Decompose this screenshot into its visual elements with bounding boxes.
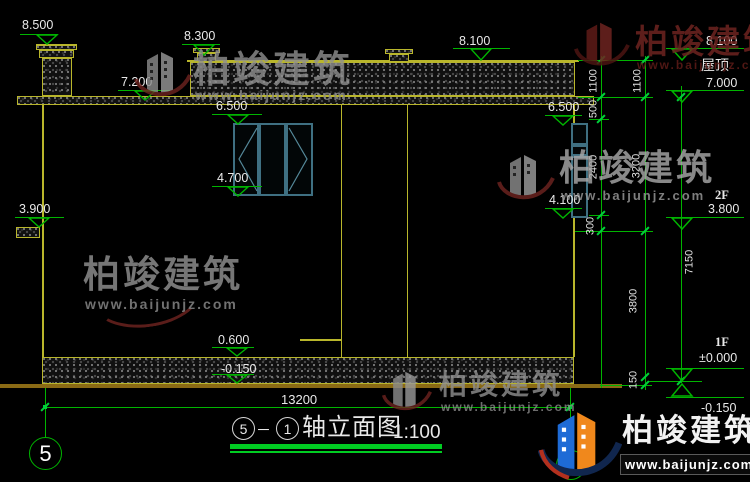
brand-url-bar: www.baijunjz.com <box>620 454 750 475</box>
axis-bubble-5: 5 <box>29 437 62 470</box>
level-line-neg150 <box>666 397 744 398</box>
level-tri-7000 <box>671 90 693 103</box>
dim-13200-line <box>45 407 570 408</box>
watermark-brand-url: www.baijunjz.com <box>85 297 238 311</box>
dim-chain-b-line <box>645 56 646 390</box>
watermark-brand-url: www.baijunjz.com <box>637 59 750 71</box>
dim-chain-overall-line <box>681 86 682 383</box>
title-axis-from: 5 <box>240 421 248 437</box>
level-right-zero: ±0.000 <box>699 352 737 365</box>
axis-bubble-right <box>556 450 586 480</box>
level-0600: 0.600 <box>218 334 249 347</box>
title-axis-to: 1 <box>284 421 292 437</box>
facade-joint-line-2 <box>407 104 408 357</box>
level-tri-4100 <box>552 208 574 219</box>
level-right-neg150: -0.150 <box>701 402 736 415</box>
level-tri-8100-mid <box>470 48 492 61</box>
left-wall-line <box>42 104 44 357</box>
level-6500-right: 6.500 <box>548 101 579 114</box>
left-canopy-slab <box>16 227 40 238</box>
level-right-7000: 7.000 <box>706 77 737 90</box>
level-8500: 8.500 <box>22 19 53 32</box>
level-tri-0600 <box>226 347 248 357</box>
level-tri-8500 <box>36 34 58 45</box>
level-tri-7200 <box>134 90 156 101</box>
roof-slab-band <box>17 96 594 105</box>
level-tri-neg150 <box>671 383 693 397</box>
window-right-mullion-1 <box>573 143 586 147</box>
level-tri-8100 <box>671 48 693 61</box>
chimney-body <box>42 58 72 96</box>
dim-a-1100: 1100 <box>589 69 600 93</box>
brand-logo-url: www.baijunjz.com <box>625 458 750 471</box>
dim-b-1100: 1100 <box>633 69 644 93</box>
dim-a-300: 300 <box>586 217 597 235</box>
level-tri-6500-mid <box>227 114 249 125</box>
brand-logo-text: 柏竣建筑 <box>622 416 750 447</box>
drawing-title: 轴立面图 <box>302 416 402 440</box>
title-axis-from-circle: 5 <box>232 417 255 440</box>
floor-label-2f: 2F <box>715 189 729 202</box>
title-underline-thick <box>230 444 442 449</box>
chimney-cap-band <box>39 50 74 58</box>
upper-roof-band <box>190 62 575 96</box>
level-tri-neg150-mid <box>226 374 248 384</box>
axis-5-grid-line <box>45 388 46 437</box>
ledge-line <box>300 339 341 341</box>
dim-b-3800: 3800 <box>629 289 640 313</box>
level-7200: 7.200 <box>121 76 152 89</box>
level-tri-zero <box>671 368 693 382</box>
facade-joint-line-1 <box>341 104 342 357</box>
window-right-mullion-2 <box>573 154 586 158</box>
level-3900: 3.900 <box>19 203 50 216</box>
vent2-body <box>389 54 409 62</box>
watermark-right: 柏竣建筑 www.baijunjz.com <box>496 147 556 210</box>
level-right-3800: 3.800 <box>708 203 739 216</box>
brand-swoosh <box>87 256 206 335</box>
dim-b-3200: 3200 <box>632 154 643 178</box>
brand-building-icon <box>496 147 556 205</box>
level-8300: 8.300 <box>184 30 215 43</box>
dim-node-dot <box>43 405 47 409</box>
dim-b-150: 150 <box>629 371 640 389</box>
level-tri-6500-right <box>552 115 574 126</box>
floor-label-1f: 1F <box>715 336 729 349</box>
dim-13200: 13200 <box>281 393 317 406</box>
level-tri-4700 <box>227 186 249 197</box>
title-underline-thin <box>230 451 442 453</box>
axis-1-grid-line <box>570 388 571 451</box>
level-8100-mid: 8.100 <box>459 35 490 48</box>
level-4100: 4.100 <box>549 194 580 207</box>
ground-line <box>0 384 622 388</box>
level-6500-mid: 6.500 <box>216 100 247 113</box>
level-tri-3900 <box>28 217 50 228</box>
dim-a-2400: 2400 <box>589 155 600 179</box>
watermark-brand-text: 柏竣建筑 <box>83 256 243 293</box>
dim-a-500: 500 <box>589 100 600 118</box>
dim-chain-a-line <box>601 56 602 388</box>
drawing-scale: 1:100 <box>393 423 441 442</box>
level-tri-8300 <box>193 44 215 56</box>
dim-node-dot <box>568 405 572 409</box>
dim-overall-7150: 7150 <box>685 250 696 274</box>
title-axis-to-circle: 1 <box>276 417 299 440</box>
cad-elevation-canvas: 1100 500 2400 300 1100 3200 3800 150 715… <box>0 0 750 482</box>
level-4700: 4.700 <box>217 172 248 185</box>
level-tri-3800 <box>671 217 693 230</box>
level-right-8100: 8.100 <box>706 35 737 48</box>
plinth-band <box>42 357 574 384</box>
roof-label: 屋顶 <box>701 58 729 72</box>
title-separator: － <box>256 423 271 438</box>
axis-bubble-5-label: 5 <box>39 441 51 467</box>
